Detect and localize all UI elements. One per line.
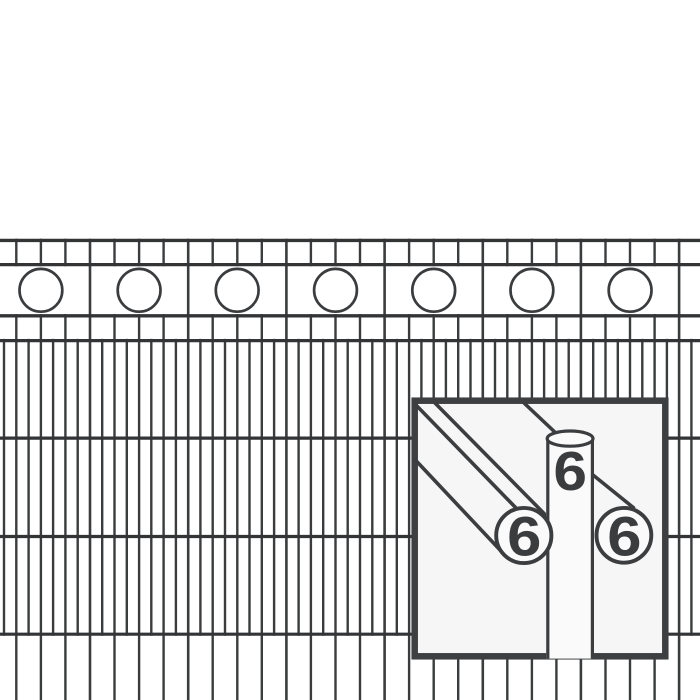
svg-text:6: 6 [507,506,541,568]
svg-text:6: 6 [553,441,587,502]
svg-text:6: 6 [607,506,641,568]
